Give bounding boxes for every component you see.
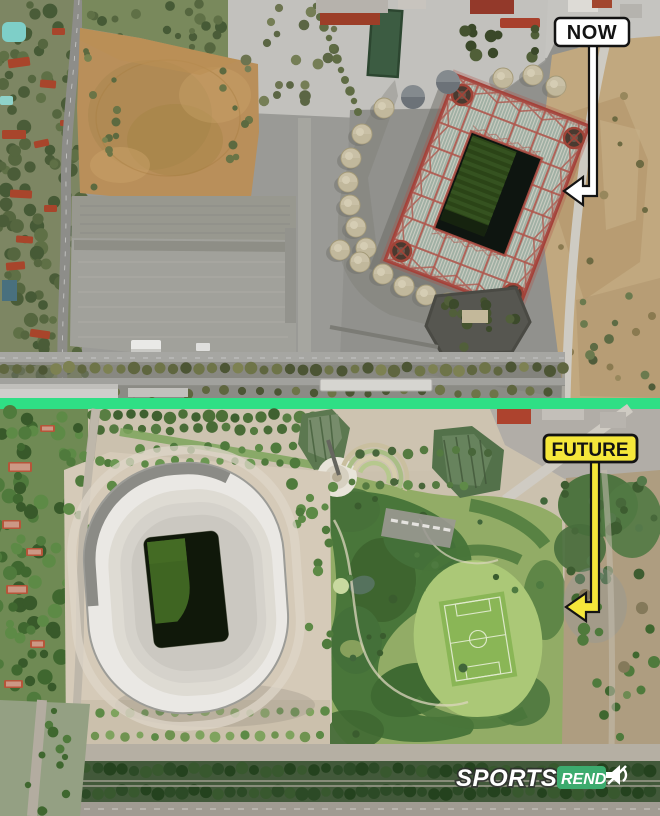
svg-text:REND: REND: [561, 771, 607, 788]
svg-text:FUTURE: FUTURE: [551, 440, 628, 461]
svg-text:SPORTS: SPORTS: [456, 765, 557, 792]
svg-text:NOW: NOW: [567, 22, 617, 44]
